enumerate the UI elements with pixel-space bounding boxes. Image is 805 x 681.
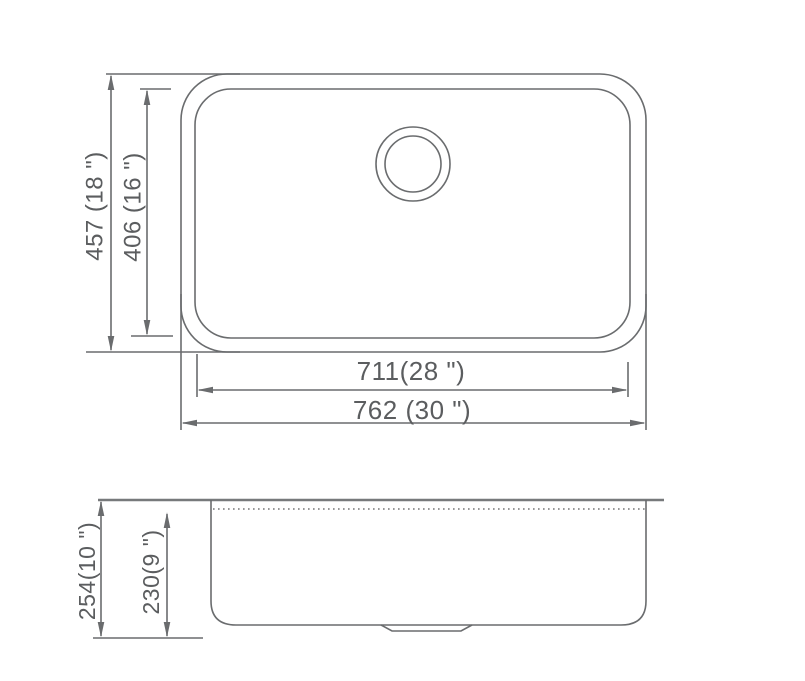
dimension-bowl-depth: 230(9 ") bbox=[138, 512, 170, 637]
arrow-right-icon bbox=[612, 387, 628, 394]
sink-technical-drawing: 457 (18 ") 406 (16 ") 711(28 ") bbox=[0, 0, 805, 681]
drain-inner-circle bbox=[385, 136, 441, 192]
drawing-svg: 457 (18 ") 406 (16 ") 711(28 ") bbox=[0, 0, 805, 681]
drain-recess-outline bbox=[381, 625, 472, 631]
arrow-up-icon bbox=[98, 501, 105, 516]
arrow-up-icon bbox=[164, 512, 171, 528]
arrow-up-icon bbox=[144, 90, 151, 106]
drain-outer-circle bbox=[376, 127, 450, 201]
dim-label-bowl-height: 406 (16 ") bbox=[120, 152, 147, 262]
dimension-overall-width: 762 (30 ") bbox=[182, 395, 646, 426]
dimension-bowl-height: 406 (16 ") bbox=[120, 90, 151, 336]
arrow-left-icon bbox=[198, 387, 214, 394]
dim-label-bowl-depth: 230(9 ") bbox=[138, 529, 164, 614]
arrow-left-icon bbox=[182, 420, 198, 427]
dim-label-bowl-width: 711(28 ") bbox=[357, 356, 466, 386]
arrow-right-icon bbox=[630, 420, 646, 427]
dimension-bowl-width: 711(28 ") bbox=[198, 356, 628, 393]
sink-outer-rim-outline bbox=[181, 74, 646, 352]
dim-label-overall-height: 457 (18 ") bbox=[82, 151, 109, 261]
dim-label-overall-depth: 254(10 ") bbox=[74, 522, 100, 620]
dim-label-overall-width: 762 (30 ") bbox=[353, 395, 471, 425]
bowl-profile-outline bbox=[211, 500, 646, 625]
arrow-down-icon bbox=[144, 320, 151, 336]
arrow-down-icon bbox=[108, 336, 115, 352]
dimension-overall-height: 457 (18 ") bbox=[82, 75, 115, 352]
arrow-up-icon bbox=[108, 75, 115, 91]
arrow-down-icon bbox=[164, 622, 171, 637]
arrow-down-icon bbox=[98, 622, 105, 637]
side-view: 254(10 ") 230(9 ") bbox=[74, 500, 664, 638]
top-view: 457 (18 ") 406 (16 ") 711(28 ") bbox=[82, 74, 647, 430]
dimension-overall-depth: 254(10 ") bbox=[74, 501, 104, 638]
